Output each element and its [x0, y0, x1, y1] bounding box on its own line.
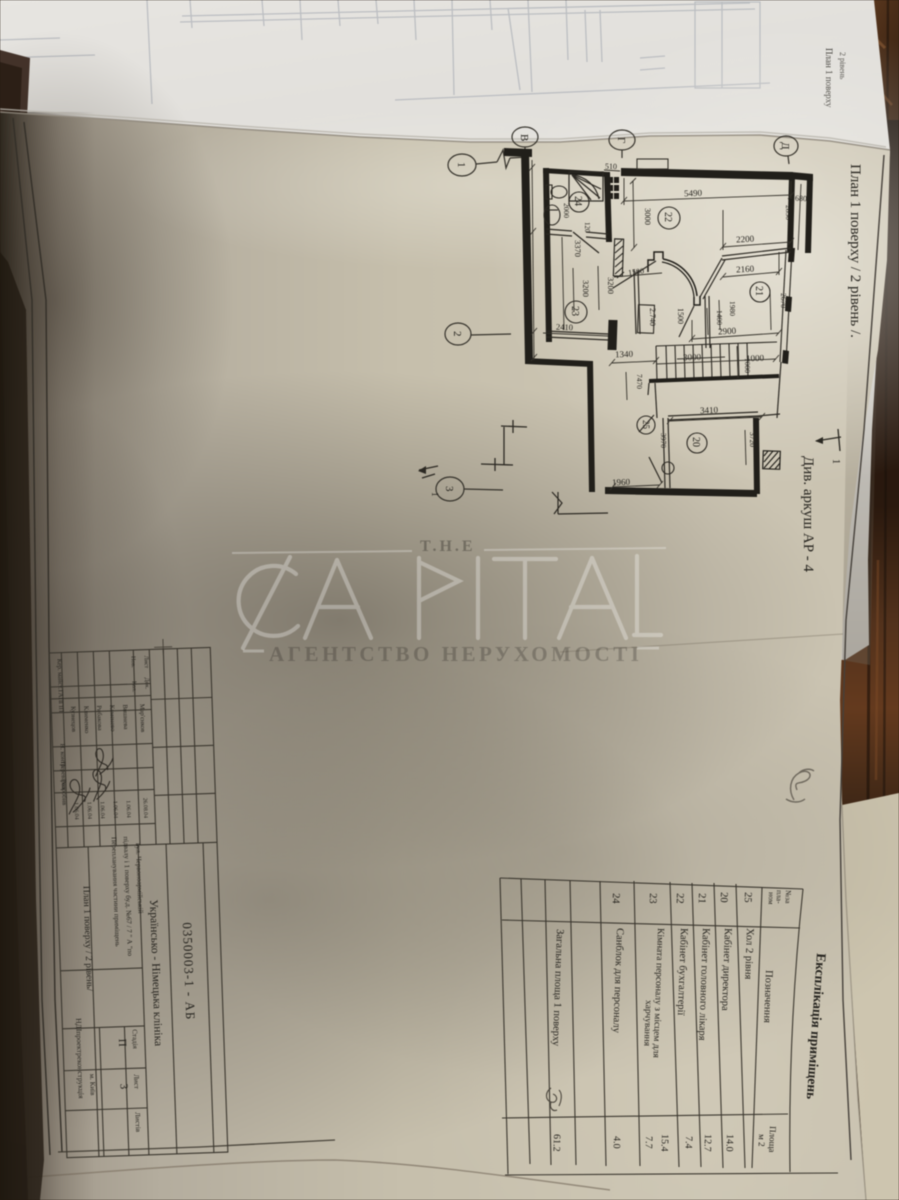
svg-text:В: В	[518, 134, 530, 141]
svg-text:26.08.04: 26.08.04	[141, 798, 148, 819]
svg-text:20: 20	[718, 892, 729, 903]
svg-text:Нов.: Нов.	[129, 656, 135, 668]
svg-text:2160: 2160	[736, 264, 755, 275]
svg-text:3370: 3370	[573, 240, 583, 257]
svg-text:1000: 1000	[743, 358, 752, 373]
svg-text:15.4: 15.4	[658, 1134, 670, 1152]
svg-text:Хол 2 рівня: Хол 2 рівня	[742, 928, 755, 980]
svg-text:1: 1	[430, 492, 440, 497]
svg-text:1: 1	[830, 459, 841, 464]
svg-text:25: 25	[742, 892, 753, 903]
svg-text:Див. аркуш АР - 4: Див. аркуш АР - 4	[800, 456, 816, 573]
svg-text:Каменево: Каменево	[108, 705, 116, 732]
svg-text:7.7: 7.7	[643, 1136, 654, 1149]
svg-text:3720: 3720	[748, 432, 757, 447]
svg-text:23: 23	[647, 893, 658, 904]
svg-text:№за: №за	[784, 890, 793, 904]
svg-text:3: 3	[443, 486, 455, 492]
svg-text:1.06.04: 1.06.04	[112, 801, 119, 819]
svg-text:Кер. майст.: Кер. майст.	[56, 659, 64, 690]
svg-text:24: 24	[572, 196, 583, 206]
svg-text:1.06.04: 1.06.04	[99, 801, 106, 819]
svg-text:3000: 3000	[643, 208, 653, 225]
svg-text:м. Київ: м. Київ	[88, 1074, 97, 1097]
svg-text:План 1 поверху / 2 рівень /.: План 1 поверху / 2 рівень /.	[847, 164, 863, 338]
svg-text:1960: 1960	[612, 477, 631, 488]
svg-text:3970: 3970	[659, 433, 668, 448]
svg-text:3000: 3000	[683, 352, 702, 363]
svg-text:24: 24	[610, 893, 621, 905]
svg-text:Стадія: Стадія	[131, 1029, 140, 1050]
svg-text:3: 3	[117, 1083, 129, 1089]
svg-text:ном: ном	[767, 892, 776, 905]
svg-text:7470: 7470	[635, 374, 644, 389]
svg-text:510: 510	[605, 162, 617, 171]
svg-text:1500: 1500	[676, 308, 685, 324]
svg-text:АГЕНТСТВО НЕРУХОМОСТІ: АГЕНТСТВО НЕРУХОМОСТІ	[269, 642, 642, 666]
svg-text:Рибакова: Рибакова	[95, 705, 103, 731]
svg-text:1980: 1980	[728, 301, 737, 316]
svg-text:Листів: Листів	[133, 1112, 142, 1133]
svg-text:2.740: 2.740	[648, 308, 657, 326]
svg-text:ГІП: ГІП	[57, 702, 64, 713]
svg-text:1.06.04: 1.06.04	[125, 800, 132, 818]
svg-text:Площа: Площа	[767, 1126, 778, 1153]
svg-text:1: 1	[455, 162, 467, 168]
svg-text:2830: 2830	[784, 205, 793, 220]
svg-text:3410: 3410	[700, 405, 719, 416]
svg-text:1.06.04: 1.06.04	[86, 802, 93, 820]
svg-text:1340: 1340	[615, 349, 634, 360]
svg-text:Мар'єнков: Мар'єнков	[138, 704, 146, 733]
svg-text:120: 120	[583, 222, 591, 233]
svg-text:7.4: 7.4	[683, 1136, 694, 1149]
svg-text:2: 2	[451, 331, 463, 337]
svg-text:Кол.: Кол.	[130, 681, 136, 693]
svg-text:Лист: Лист	[142, 656, 148, 669]
svg-text:Лист: Лист	[132, 1074, 141, 1089]
svg-text:4.0: 4.0	[611, 1136, 622, 1149]
svg-text:3200: 3200	[581, 280, 591, 297]
svg-text:21: 21	[696, 893, 707, 904]
svg-text:23: 23	[569, 306, 580, 316]
svg-text:Кузнецов: Кузнецов	[69, 706, 77, 732]
svg-text:2410: 2410	[556, 322, 573, 333]
svg-text:T.H.E: T.H.E	[420, 538, 476, 555]
svg-text:5490: 5490	[684, 188, 703, 199]
svg-text:Г: Г	[615, 137, 627, 143]
svg-text:14.0: 14.0	[723, 1134, 735, 1152]
svg-text:П: П	[116, 1039, 128, 1047]
svg-text:2000: 2000	[562, 203, 571, 218]
svg-text:Позначення: Позначення	[761, 970, 774, 1023]
svg-text:22: 22	[674, 893, 685, 904]
svg-text:22: 22	[662, 212, 673, 222]
svg-text:21: 21	[753, 286, 764, 296]
svg-text:2900: 2900	[718, 326, 737, 337]
svg-text:1400: 1400	[715, 310, 724, 325]
svg-text:Розробив: Розробив	[60, 779, 68, 805]
svg-text:Клименко: Клименко	[82, 706, 90, 734]
svg-text:680: 680	[795, 194, 807, 204]
svg-text:2200: 2200	[736, 234, 755, 245]
svg-text:ГАП: ГАП	[57, 690, 64, 703]
svg-text:м 2: м 2	[757, 1134, 767, 1147]
svg-text:Д: Д	[779, 142, 791, 150]
svg-text:12.7: 12.7	[701, 1134, 713, 1152]
svg-text:3200: 3200	[606, 277, 616, 294]
svg-text:20: 20	[690, 437, 701, 447]
svg-text:харчування: харчування	[641, 1000, 653, 1047]
svg-text:Вишнева: Вишнева	[121, 704, 129, 729]
svg-text:2670: 2670	[779, 293, 788, 308]
svg-text:Док.: Док.	[143, 678, 149, 690]
svg-text:61.2: 61.2	[550, 1134, 562, 1152]
